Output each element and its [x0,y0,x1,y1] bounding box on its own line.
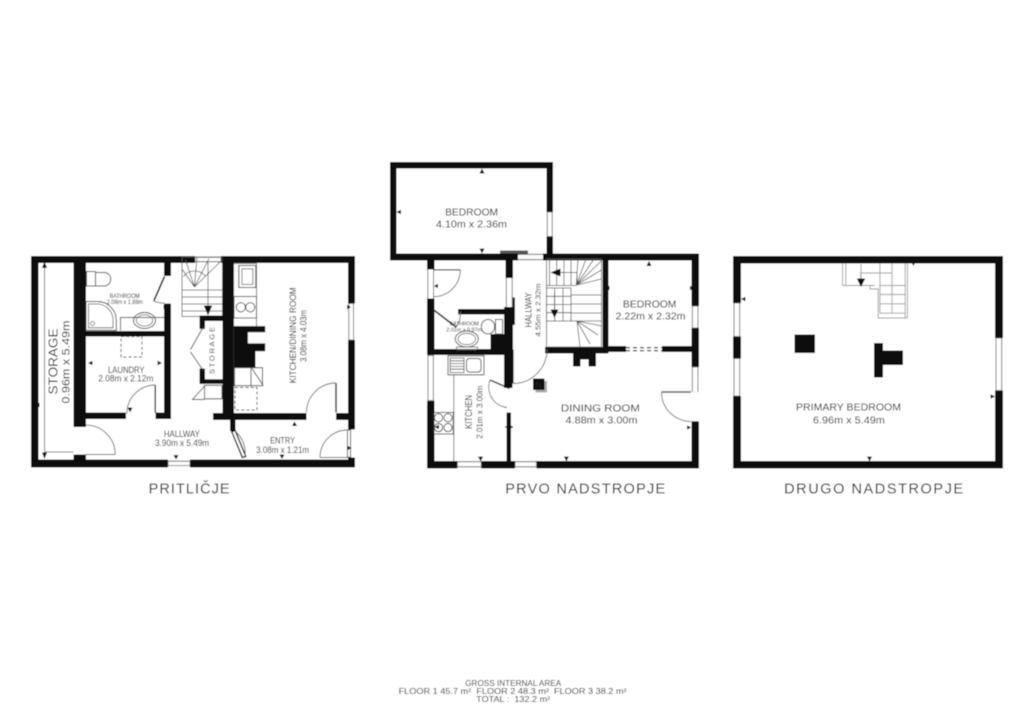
svg-text:2.01m x 0.97m: 2.01m x 0.97m [446,327,482,333]
svg-text:BEDROOM: BEDROOM [623,300,677,311]
svg-text:N: N [535,380,542,391]
svg-text:4.55m x 2.32m: 4.55m x 2.32m [533,284,542,337]
svg-text:0.96m x 5.49m: 0.96m x 5.49m [61,321,73,404]
svg-text:4.10m x 2.36m: 4.10m x 2.36m [436,220,507,231]
svg-text:2.01m x 3.00m: 2.01m x 3.00m [475,386,485,439]
svg-text:PRVO NADSTROPJE: PRVO NADSTROPJE [505,482,665,498]
svg-text:3.90m x 5.49m: 3.90m x 5.49m [155,438,209,448]
svg-text:3.08m x 4.03m: 3.08m x 4.03m [298,310,308,362]
svg-text:PRITLIČJE: PRITLIČJE [149,481,230,498]
svg-text:DINING ROOM: DINING ROOM [561,403,640,414]
svg-text:2.08m x 2.12m: 2.08m x 2.12m [98,374,153,384]
svg-text:3.08m x 1.21m: 3.08m x 1.21m [256,445,309,455]
svg-text:TOTAL : 132.2 m²: TOTAL : 132.2 m² [476,695,550,704]
svg-text:HALLWAY: HALLWAY [524,292,534,327]
svg-text:4.88m x 3.00m: 4.88m x 3.00m [566,415,638,426]
svg-text:PRIMARY BEDROOM: PRIMARY BEDROOM [796,403,901,414]
svg-text:KITCHEN: KITCHEN [464,395,475,429]
svg-text:BEDROOM: BEDROOM [445,207,498,218]
svg-text:6.96m x 5.49m: 6.96m x 5.49m [813,416,885,427]
svg-text:2.08m x 1.88m: 2.08m x 1.88m [107,299,143,306]
svg-text:2.22m x 2.32m: 2.22m x 2.32m [616,312,686,323]
svg-text:STORAGE: STORAGE [46,328,61,394]
svg-text:STORAGE: STORAGE [208,327,217,374]
svg-text:KITCHEN/DINING ROOM: KITCHEN/DINING ROOM [288,287,298,383]
